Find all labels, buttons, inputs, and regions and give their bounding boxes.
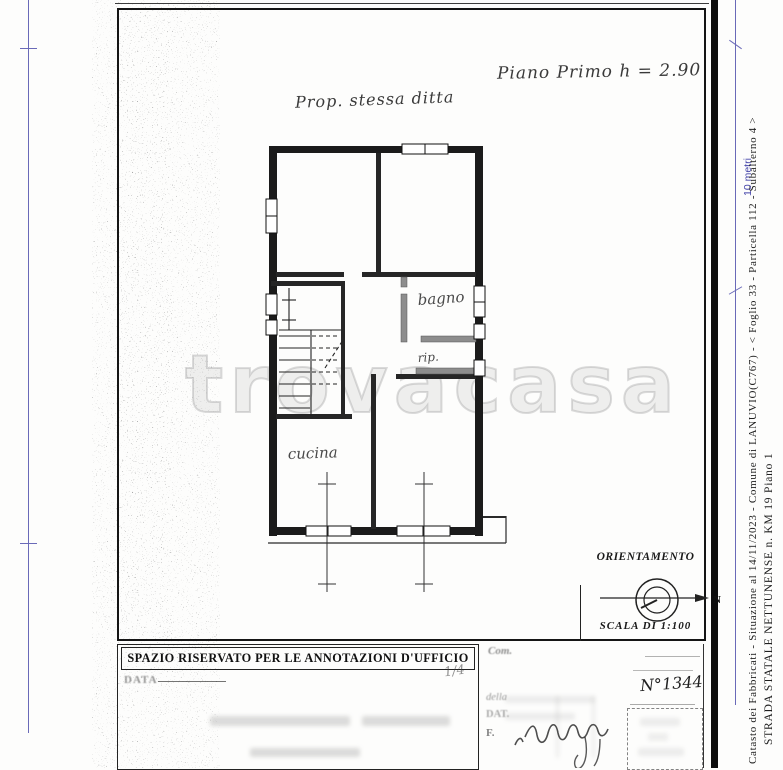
north-arrow-icon (695, 594, 709, 602)
scale-label: SCALA DI 1:100 (583, 620, 708, 632)
scanned-cadastral-floorplan-page: { "page": { "watermark": "trovacasa" }, … (0, 0, 783, 768)
right-blue-ruler-line (735, 0, 736, 705)
orientation-box-border (580, 585, 581, 641)
left-ruler-tick-bottom (20, 543, 37, 544)
form-rule (645, 656, 700, 657)
left-blue-ruler-line (28, 0, 29, 733)
data-field-line (158, 681, 226, 682)
faded-stamp-smudge (640, 718, 680, 726)
staircase (279, 288, 343, 416)
della-field-label: della (486, 692, 507, 703)
right-form-border (703, 644, 704, 768)
scan-edge-bar (711, 0, 718, 768)
com-field-label: Com. (488, 645, 512, 657)
room-label-cucina: cucina (288, 443, 338, 463)
handwritten-page-mark: 1/4 (443, 663, 466, 681)
room-label-bagno: bagno (417, 288, 465, 309)
office-box-header: SPAZIO RISERVATO PER LE ANNOTAZIONI D'UF… (121, 647, 475, 670)
faded-stamp-smudge (648, 733, 668, 741)
room-label-rip: rip. (417, 350, 439, 365)
orientation-title: ORIENTAMENTO (583, 551, 708, 563)
handwritten-floor-note: Piano Primo h = 2.90 (497, 60, 702, 84)
form-rule (633, 670, 693, 671)
faded-stamp-smudge (250, 748, 360, 757)
f-field-label: F. (486, 727, 494, 739)
catasto-margin-text: Catasto dei Fabbricati - Situazione al 1… (747, 117, 759, 764)
faded-stamp-smudge (362, 716, 450, 726)
north-label: N (713, 594, 721, 606)
address-margin-text: STRADA STATALE NETTUNENSE n. KM 19 Piano… (763, 453, 775, 745)
faded-stamp-smudge (210, 716, 350, 726)
page-top-rule (115, 3, 709, 4)
left-ruler-tick-top (20, 48, 37, 49)
handwritten-signature (505, 695, 645, 768)
data-field-label: DATA (124, 674, 158, 686)
floor-plan-drawing: bagno rip. cucina (240, 120, 540, 600)
